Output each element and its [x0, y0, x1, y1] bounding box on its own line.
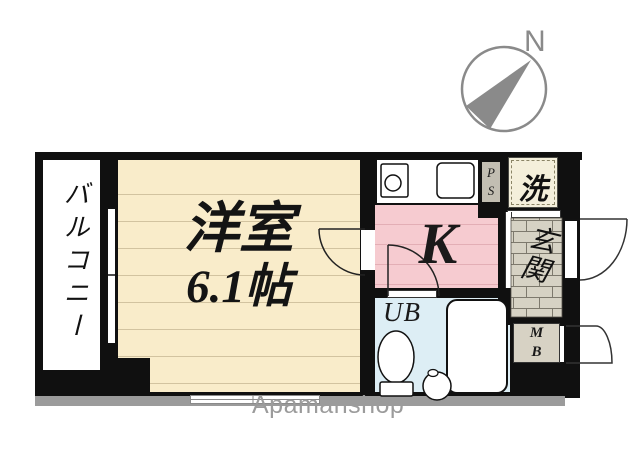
western-room-label: 洋室 6.1帖	[118, 201, 360, 311]
kitchen-label: K	[405, 210, 471, 277]
pipe-space-letter-s: S	[488, 182, 495, 200]
pipe-space-letter-p: P	[487, 164, 495, 182]
laundry-box: 洗	[508, 157, 558, 208]
burner-icon	[385, 175, 401, 191]
western-room-size: 6.1帖	[118, 264, 360, 311]
unit-bath-label: UB	[383, 297, 421, 328]
toilet-bowl-icon	[378, 331, 414, 383]
entrance-door-arc	[580, 219, 627, 280]
floorplan-canvas: N バルコニー 洋室 6.1帖 K P S 洗 玄関 UB M B Apaman…	[0, 0, 640, 455]
washbasin-tap-icon	[428, 370, 438, 377]
balcony-label: バルコニー	[56, 180, 93, 380]
meter-box: M B	[513, 323, 560, 363]
meter-box-letter-b: B	[531, 343, 541, 362]
western-room-name: 洋室	[118, 201, 360, 256]
pipe-space-box: P S	[482, 162, 500, 202]
meter-box-letter-m: M	[530, 324, 543, 343]
bathtub-icon	[447, 300, 507, 393]
sink-icon	[437, 163, 474, 198]
meter-box-door-arc	[566, 326, 612, 363]
washbasin-icon	[423, 372, 451, 400]
compass-north-label: N	[524, 25, 546, 59]
watermark: Apamanshop	[252, 391, 404, 420]
laundry-label: 洗	[509, 166, 557, 208]
